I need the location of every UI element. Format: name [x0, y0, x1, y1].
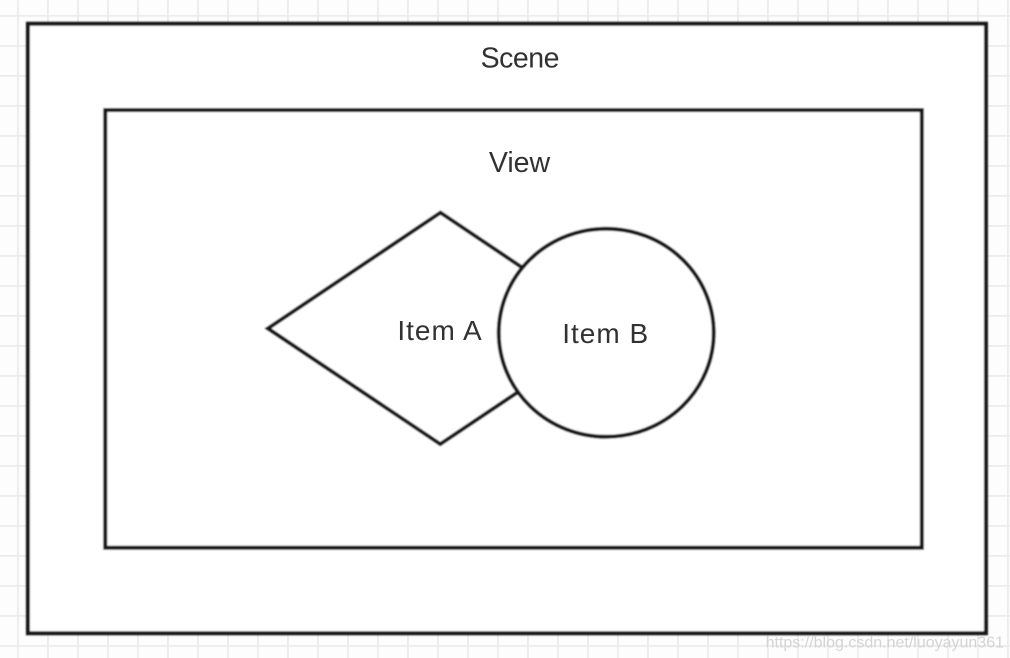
svg-text:Item A: Item A — [397, 315, 482, 346]
svg-text:View: View — [489, 147, 551, 179]
svg-text:Item B: Item B — [562, 318, 649, 349]
svg-text:https://blog.csdn.net/luoyayun: https://blog.csdn.net/luoyayun361 — [766, 634, 1004, 651]
svg-text:Scene: Scene — [481, 43, 559, 75]
